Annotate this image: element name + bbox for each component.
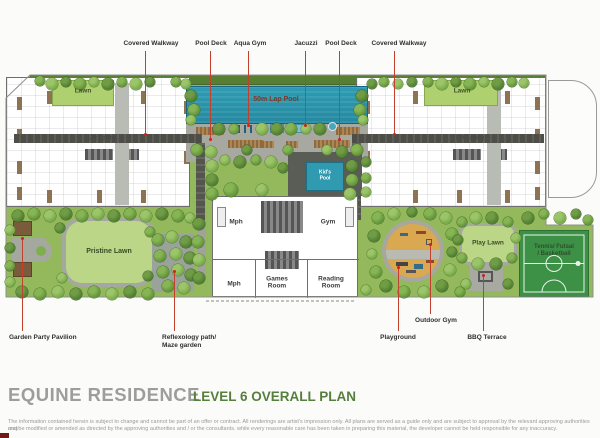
tree (440, 212, 452, 224)
balcony-accent (505, 190, 510, 203)
leader-dot (144, 133, 147, 136)
left-lawn-label: Lawn (75, 87, 92, 94)
tree (368, 230, 380, 242)
tree (424, 208, 436, 220)
tree (35, 76, 45, 86)
garden-party-pavilion (13, 221, 32, 236)
lap-pool (186, 86, 368, 124)
tree (492, 78, 504, 90)
tree (361, 157, 371, 167)
tree (479, 77, 489, 87)
tree (34, 288, 46, 300)
tree (278, 163, 288, 173)
callout-label: BBQ Terrace (467, 334, 506, 342)
leader-line (430, 245, 431, 314)
tree (539, 209, 549, 219)
play-equipment (414, 264, 423, 269)
tennis-court-label: Tennis/ Futsal / Basketball (534, 244, 574, 258)
tree (370, 266, 382, 278)
tree (358, 115, 368, 125)
tree (193, 272, 205, 284)
tree (191, 144, 203, 156)
left-corridor (115, 143, 129, 205)
mph-upper-label: Mph (229, 218, 242, 225)
tree (70, 288, 82, 300)
tree (5, 225, 15, 235)
tree (554, 212, 566, 224)
playground-circle (382, 220, 444, 282)
tree (220, 155, 230, 165)
lift-core (85, 149, 113, 160)
aqua-gym-marker (244, 125, 246, 133)
clubhouse-core (265, 251, 299, 269)
tree (57, 273, 67, 283)
callout-label: Outdoor Gym (415, 317, 457, 325)
tree (457, 217, 467, 227)
balcony-accent (535, 187, 540, 200)
callout-label: Pool Deck (195, 40, 226, 48)
leader-line (339, 51, 340, 139)
leader-dot (393, 133, 396, 136)
gym-equipment (416, 231, 426, 234)
tree (130, 78, 142, 90)
tree (171, 77, 181, 87)
leader-dot (173, 270, 176, 273)
tree (367, 249, 377, 259)
leader-dot (247, 124, 250, 127)
tree (154, 250, 166, 262)
tree (5, 243, 15, 253)
tree (285, 123, 297, 135)
disclaimer-line-2: maybe modified or amended as directed by… (8, 426, 596, 433)
tree (89, 77, 99, 87)
balcony-accent (413, 91, 418, 104)
tree (356, 90, 368, 102)
callout-label: Garden Party Pavilion (9, 334, 77, 342)
tree (166, 231, 178, 243)
balcony-accent (47, 190, 52, 203)
callout-label: Reflexology path/ Maze garden (162, 334, 216, 350)
tree (60, 208, 72, 220)
leader-dot (338, 138, 341, 141)
tree (117, 77, 127, 87)
tree (44, 210, 56, 222)
leader-line (248, 51, 249, 125)
partition-wall (255, 259, 256, 298)
tree (271, 123, 283, 135)
tree (447, 247, 457, 257)
balcony-accent (535, 97, 540, 110)
leader-line (483, 276, 484, 331)
tree (152, 234, 164, 246)
lift-core (453, 149, 481, 160)
callout-label: Jacuzzi (294, 40, 317, 48)
tree (470, 212, 482, 224)
leader-line (22, 239, 23, 331)
clubhouse-core (261, 201, 303, 233)
corner-mark (0, 433, 9, 438)
tree (457, 253, 467, 263)
play-lawn-label: Play Lawn (472, 239, 504, 246)
tree (379, 77, 389, 87)
tree (185, 90, 197, 102)
tree (193, 254, 205, 266)
tree (283, 145, 293, 155)
tree (490, 258, 502, 270)
tree (224, 183, 238, 197)
road-outline (548, 80, 597, 198)
tree (5, 277, 15, 287)
tree (322, 145, 332, 155)
balcony-accent (535, 161, 540, 174)
tree (522, 212, 534, 224)
tree (124, 286, 136, 298)
tree (186, 115, 196, 125)
tree (455, 287, 465, 297)
tree (372, 212, 384, 224)
balcony-accent (17, 97, 22, 110)
playground-surface (386, 224, 440, 278)
balcony-accent (17, 161, 22, 174)
tree (472, 258, 484, 270)
tree (256, 184, 268, 196)
tree (92, 208, 104, 220)
tree (55, 223, 65, 233)
tree (206, 160, 218, 172)
tree (178, 282, 190, 294)
playground-path (386, 250, 440, 259)
tree (346, 160, 358, 172)
callout-label: Covered Walkway (123, 40, 178, 48)
leader-line (305, 51, 306, 125)
tree (265, 156, 277, 168)
tree (451, 77, 461, 87)
tree (140, 210, 152, 222)
tree (380, 280, 392, 292)
tree (361, 285, 371, 295)
tree (346, 174, 358, 186)
mph-lower-label: Mph (227, 280, 240, 287)
leader-dot (429, 243, 432, 246)
tree (407, 77, 417, 87)
leader-dot (21, 237, 24, 240)
tree (106, 288, 118, 300)
tree (88, 286, 100, 298)
tree (436, 78, 448, 90)
callout-label: Pool Deck (325, 40, 356, 48)
tree (519, 78, 529, 88)
tree (172, 210, 184, 222)
tree (361, 187, 371, 197)
tree (407, 207, 417, 217)
callout-label: Aqua Gym (234, 40, 267, 48)
tree (76, 210, 88, 222)
tree (423, 77, 433, 87)
tree (61, 77, 71, 87)
gym-equipment (400, 233, 408, 236)
left-corridor (115, 83, 129, 138)
tree (344, 188, 356, 200)
tree (206, 174, 218, 186)
leader-line (398, 268, 399, 331)
balcony-accent (413, 190, 418, 203)
tree (12, 210, 24, 222)
right-corridor (487, 143, 501, 205)
right-lawn-label: Lawn (454, 87, 471, 94)
tree (145, 77, 155, 87)
tree (234, 156, 246, 168)
leader-line (210, 51, 211, 139)
tree (361, 173, 371, 183)
tree (206, 188, 218, 200)
tree (157, 266, 169, 278)
leader-dot (304, 124, 307, 127)
partition-wall (213, 259, 359, 260)
play-equipment (406, 270, 416, 273)
pristine-lawn-label: Pristine Lawn (86, 248, 132, 256)
tree (436, 280, 448, 292)
tree (124, 208, 136, 220)
tree (418, 286, 430, 298)
stair (345, 207, 354, 227)
tree (444, 264, 456, 276)
gym-label: Gym (321, 218, 335, 225)
callout-label: Covered Walkway (371, 40, 426, 48)
tree (156, 208, 168, 220)
reading-room-label: Reading Room (318, 276, 344, 291)
site-plan-page: Lawn Lawn 50m Lap Pool Lift Lobby Lift L… (0, 0, 600, 438)
tree (192, 236, 204, 248)
tree (388, 208, 400, 220)
tree (213, 123, 225, 135)
leader-dot (397, 266, 400, 269)
tree (181, 79, 191, 89)
tree (229, 124, 239, 134)
tree (205, 146, 217, 158)
covered-walkway-right (352, 134, 544, 143)
right-lift-lobby-label: Lift Lobby (456, 136, 485, 143)
tree (453, 235, 463, 245)
tree (52, 286, 64, 298)
jacuzzi-circle (328, 122, 337, 131)
balcony-accent (505, 91, 510, 104)
leader-line (174, 272, 175, 331)
lounger-row (262, 141, 274, 148)
lap-pool-label: 50m Lap Pool (253, 96, 299, 104)
tree (486, 212, 498, 224)
tree (314, 123, 326, 135)
tree (193, 218, 205, 230)
tree (108, 210, 120, 222)
tennis-futsal-basketball-court (519, 230, 589, 297)
left-lift-lobby-label: Lift Lobby (88, 136, 117, 143)
callout-label: Playground (380, 334, 416, 342)
tree (143, 271, 153, 281)
tree (251, 155, 261, 165)
games-room-label: Games Room (266, 276, 288, 291)
tree (511, 233, 521, 243)
tree (351, 144, 363, 156)
leader-line (394, 51, 395, 134)
tree (242, 145, 252, 155)
project-title: EQUINE RESIDENCE (8, 384, 200, 406)
tree (5, 261, 15, 271)
balcony-accent (141, 190, 146, 203)
garden-roundabout (30, 240, 52, 262)
tree (162, 280, 174, 292)
tree (256, 123, 268, 135)
tree (102, 78, 114, 90)
tree (503, 217, 513, 227)
leader-dot (209, 138, 212, 141)
balcony-accent (17, 187, 22, 200)
tree (46, 78, 58, 90)
tree (507, 77, 517, 87)
partition-wall (307, 259, 308, 298)
tree (507, 253, 517, 263)
tree (170, 248, 182, 260)
tree (571, 209, 581, 219)
tree (28, 208, 40, 220)
aqua-gym-marker (250, 125, 252, 133)
tree (583, 215, 593, 225)
stair (217, 207, 226, 227)
tree (398, 286, 410, 298)
balcony-accent (457, 190, 462, 203)
leader-dot (482, 274, 485, 277)
plan-title: LEVEL 6 OVERALL PLAN (193, 389, 356, 404)
leader-line (145, 51, 146, 134)
tree (336, 146, 348, 158)
tree (142, 288, 154, 300)
kids-pool-label: Kid's Pool (319, 170, 331, 182)
tree (503, 279, 513, 289)
tree (367, 79, 377, 89)
balcony-accent (97, 190, 102, 203)
tree (180, 236, 192, 248)
